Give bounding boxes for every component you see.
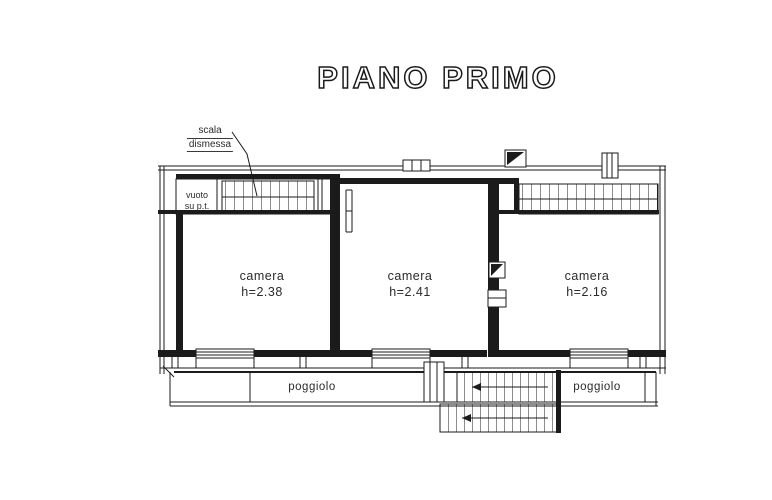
wall-niche xyxy=(488,290,506,307)
floor-plan-title: PIANO PRIMO xyxy=(317,60,558,95)
floor-plan-page: PIANO PRIMO xyxy=(0,0,772,500)
floor-plan-drawing: PIANO PRIMO xyxy=(0,0,772,500)
right-window-strip xyxy=(499,178,659,214)
void-note-line2: su p.t. xyxy=(185,201,210,212)
room-label-camera-2: camera h=2.41 xyxy=(388,268,433,301)
room-height: h=2.16 xyxy=(565,284,610,300)
room-label-camera-3: camera h=2.16 xyxy=(565,268,610,301)
top-wall-pier xyxy=(403,160,430,171)
flue-symbol-top-icon xyxy=(505,150,526,167)
south-facade xyxy=(160,357,666,368)
room-height: h=2.41 xyxy=(388,284,433,300)
room-name: camera xyxy=(240,268,285,284)
middle-room-door xyxy=(346,190,352,232)
balcony-label-left: poggiolo xyxy=(288,381,335,393)
balcony-label-right: poggiolo xyxy=(573,381,620,393)
stair-note: scala dismessa xyxy=(187,125,233,152)
stair-note-line1: scala xyxy=(187,125,233,139)
void-note: vuoto su p.t. xyxy=(185,190,210,212)
stair-note-line2: dismessa xyxy=(187,139,233,153)
flue-symbol-middle-icon xyxy=(489,262,505,278)
room-height: h=2.38 xyxy=(240,284,285,300)
void-note-line1: vuoto xyxy=(185,190,210,201)
room-name: camera xyxy=(388,268,433,284)
room-name: camera xyxy=(565,268,610,284)
room-label-camera-1: camera h=2.38 xyxy=(240,268,285,301)
top-right-pier xyxy=(602,153,618,178)
